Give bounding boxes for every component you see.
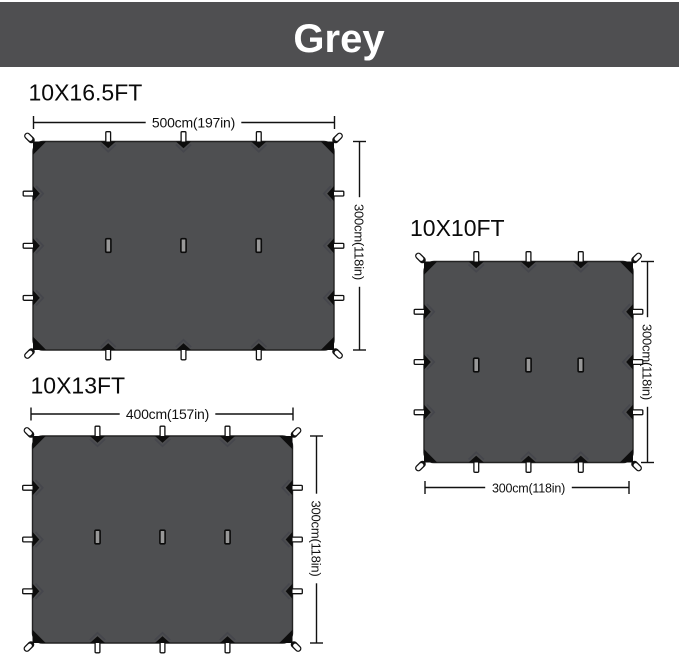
svg-text:10X10FT: 10X10FT: [410, 215, 505, 241]
svg-text:10X13FT: 10X13FT: [31, 373, 126, 399]
svg-text:10X16.5FT: 10X16.5FT: [29, 80, 143, 106]
svg-text:Grey: Grey: [293, 17, 385, 61]
svg-text:400cm(157in): 400cm(157in): [126, 406, 209, 422]
svg-text:300cm(118in): 300cm(118in): [492, 481, 565, 495]
svg-text:300cm(118in): 300cm(118in): [309, 500, 324, 576]
svg-text:500cm(197in): 500cm(197in): [152, 114, 235, 130]
svg-text:300cm(118in): 300cm(118in): [352, 204, 367, 280]
